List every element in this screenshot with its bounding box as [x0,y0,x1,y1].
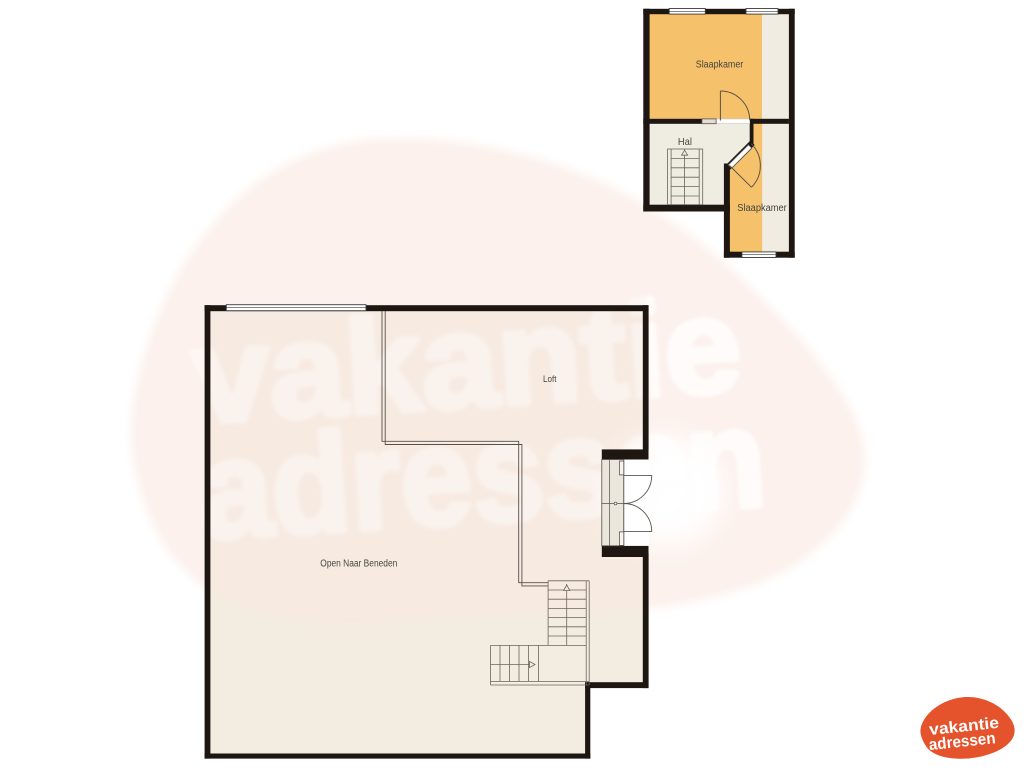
svg-text:Loft: Loft [543,374,557,384]
svg-text:Slaapkamer: Slaapkamer [696,60,744,71]
svg-text:Hal: Hal [678,137,692,148]
svg-text:Slaapkamer: Slaapkamer [737,203,787,214]
svg-text:Open Naar Beneden: Open Naar Beneden [320,559,397,570]
